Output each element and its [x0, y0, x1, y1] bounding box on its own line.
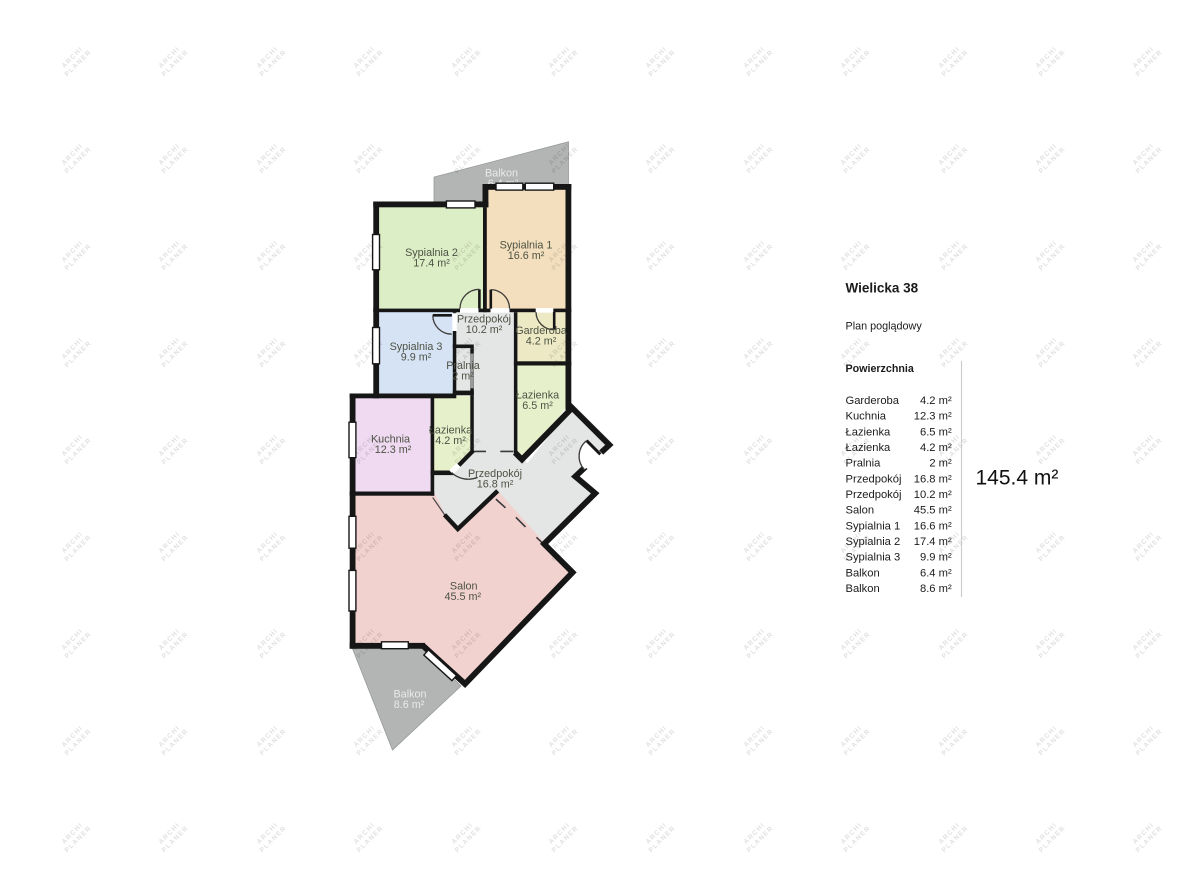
svg-text:16.8 m²: 16.8 m²: [477, 478, 514, 490]
svg-text:Balkon: Balkon: [846, 583, 880, 595]
svg-text:6.4 m²: 6.4 m²: [920, 567, 952, 579]
svg-text:17.4 m²: 17.4 m²: [914, 536, 952, 548]
svg-text:Pralnia: Pralnia: [846, 458, 882, 470]
svg-text:12.3 m²: 12.3 m²: [375, 444, 412, 456]
svg-text:6.5 m²: 6.5 m²: [522, 400, 553, 412]
svg-text:Sypialnia 3: Sypialnia 3: [846, 552, 901, 564]
svg-text:45.5 m²: 45.5 m²: [914, 505, 952, 517]
svg-text:8.6 m²: 8.6 m²: [920, 583, 952, 595]
svg-text:16.8 m²: 16.8 m²: [914, 473, 952, 485]
svg-text:6.5 m²: 6.5 m²: [920, 426, 952, 438]
svg-text:Wielicka 38: Wielicka 38: [846, 281, 919, 296]
svg-text:145.4 m²: 145.4 m²: [976, 467, 1059, 490]
svg-text:Sypialnia 2: Sypialnia 2: [846, 536, 901, 548]
svg-text:2 m²: 2 m²: [452, 370, 474, 382]
svg-text:Powierzchnia: Powierzchnia: [846, 363, 915, 375]
svg-text:16.6 m²: 16.6 m²: [508, 250, 545, 262]
svg-text:Salon: Salon: [846, 505, 875, 517]
svg-text:Przedpokój: Przedpokój: [846, 489, 902, 501]
svg-text:4.2 m²: 4.2 m²: [526, 335, 557, 347]
svg-text:2 m²: 2 m²: [929, 458, 952, 470]
svg-text:Kuchnia: Kuchnia: [846, 411, 887, 423]
svg-text:Sypialnia 1: Sypialnia 1: [846, 520, 901, 532]
svg-text:10.2 m²: 10.2 m²: [466, 324, 503, 336]
svg-text:10.2 m²: 10.2 m²: [914, 489, 952, 501]
svg-text:4.2 m²: 4.2 m²: [435, 435, 466, 447]
svg-text:Łazienka: Łazienka: [846, 442, 892, 454]
svg-text:Garderoba: Garderoba: [846, 395, 900, 407]
svg-text:Plan poglądowy: Plan poglądowy: [846, 321, 923, 333]
svg-text:Balkon: Balkon: [846, 567, 880, 579]
svg-text:12.3 m²: 12.3 m²: [914, 411, 952, 423]
svg-text:45.5 m²: 45.5 m²: [444, 591, 481, 603]
svg-text:9.9 m²: 9.9 m²: [920, 552, 952, 564]
svg-text:9.9 m²: 9.9 m²: [401, 351, 432, 363]
svg-text:17.4 m²: 17.4 m²: [413, 257, 450, 269]
svg-text:8.6 m²: 8.6 m²: [394, 699, 425, 711]
svg-text:4.2 m²: 4.2 m²: [920, 442, 952, 454]
svg-text:Łazienka: Łazienka: [846, 426, 892, 438]
svg-text:Przedpokój: Przedpokój: [846, 473, 902, 485]
svg-text:16.6 m²: 16.6 m²: [914, 520, 952, 532]
svg-text:4.2 m²: 4.2 m²: [920, 395, 952, 407]
